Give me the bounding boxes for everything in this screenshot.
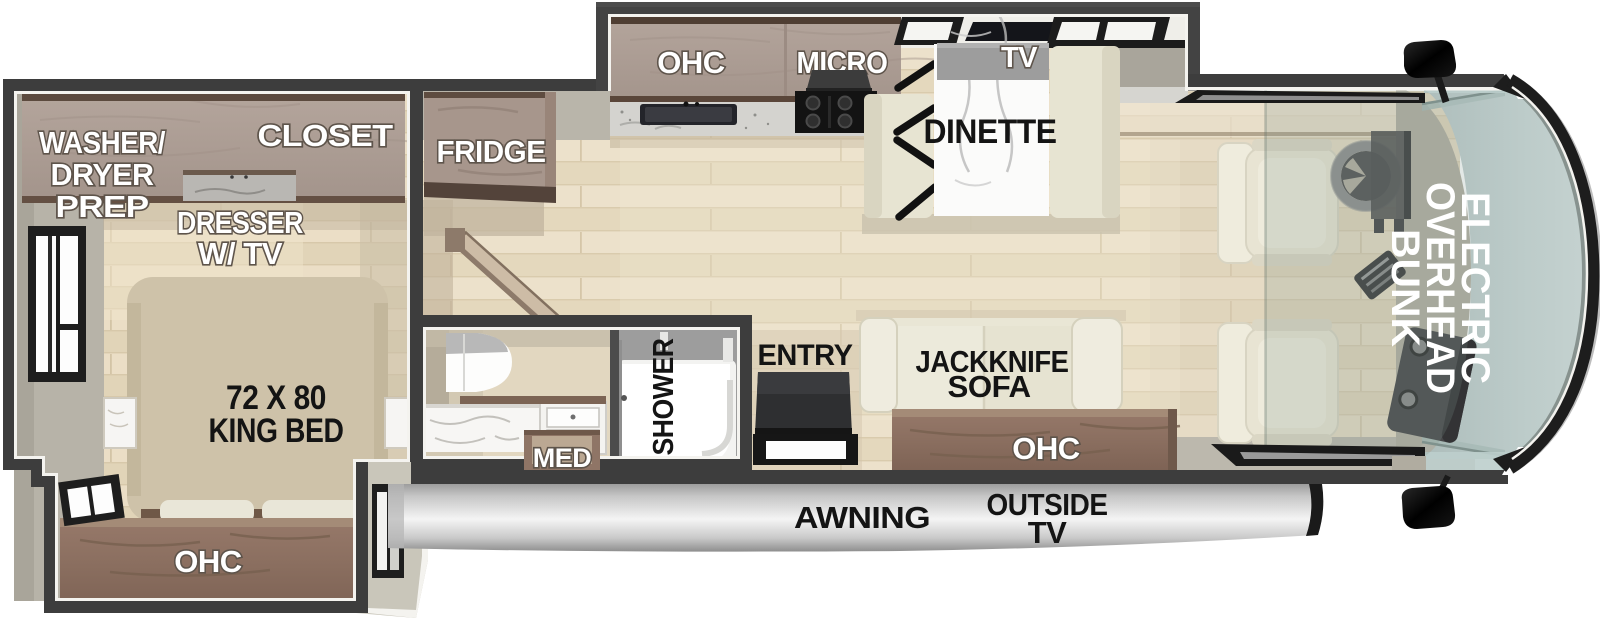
svg-text:MED: MED bbox=[533, 443, 592, 473]
svg-text:DINETTE: DINETTE bbox=[924, 113, 1057, 151]
svg-text:DRESSER: DRESSER bbox=[177, 205, 303, 240]
svg-text:W/ TV: W/ TV bbox=[198, 236, 283, 271]
svg-text:WASHER/: WASHER/ bbox=[39, 125, 166, 160]
svg-text:SOFA: SOFA bbox=[948, 369, 1031, 404]
svg-text:OHC: OHC bbox=[1012, 431, 1080, 466]
svg-text:FRIDGE: FRIDGE bbox=[437, 134, 546, 169]
svg-text:KING BED: KING BED bbox=[209, 412, 344, 450]
svg-text:BUNK: BUNK bbox=[1383, 229, 1427, 347]
svg-text:AWNING: AWNING bbox=[794, 500, 930, 535]
svg-text:OHC: OHC bbox=[657, 45, 725, 80]
svg-text:DRYER: DRYER bbox=[51, 157, 154, 192]
svg-text:OHC: OHC bbox=[174, 544, 242, 579]
svg-text:SHOWER: SHOWER bbox=[648, 339, 680, 456]
svg-text:PREP: PREP bbox=[56, 189, 149, 224]
svg-text:TV: TV bbox=[1028, 515, 1067, 550]
svg-text:CLOSET: CLOSET bbox=[258, 118, 394, 153]
svg-text:TV: TV bbox=[1001, 42, 1038, 74]
svg-text:ENTRY: ENTRY bbox=[758, 339, 853, 372]
